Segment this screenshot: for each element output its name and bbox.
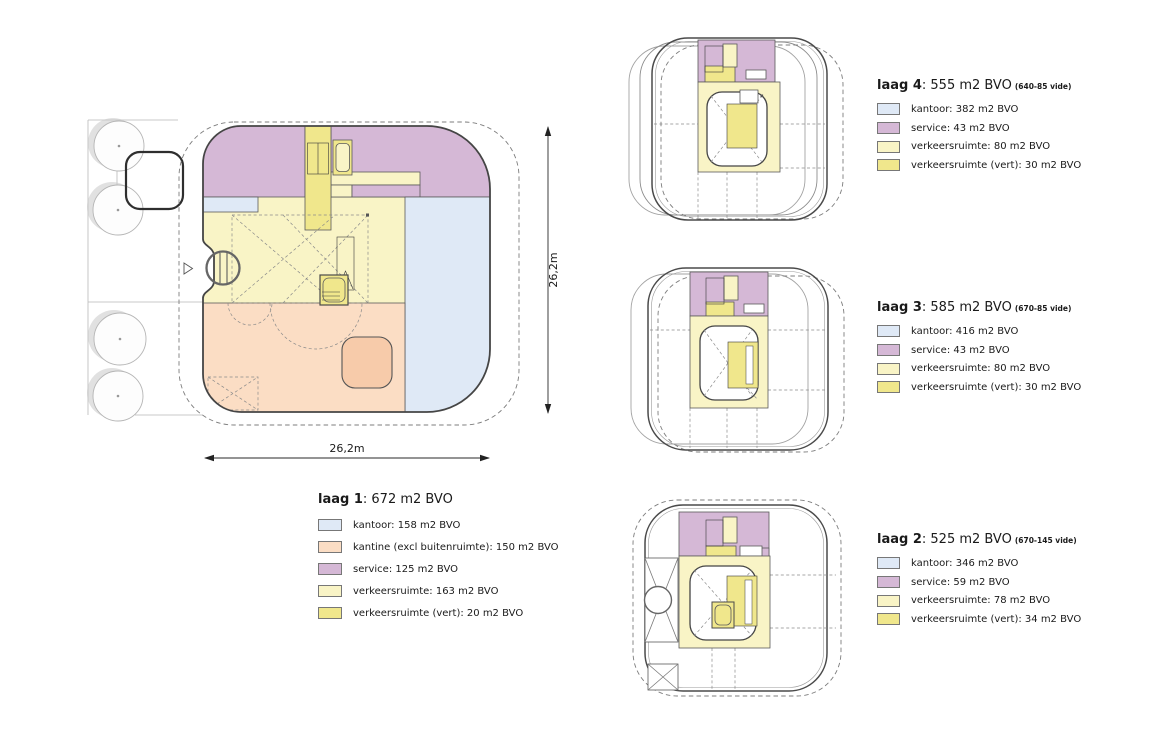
- legend-item-label: service: 43 m2 BVO: [911, 345, 1010, 356]
- swatch-kantoor: [877, 103, 900, 115]
- elevator-car: [336, 144, 350, 172]
- legend-item: verkeersruimte (vert): 34 m2 BVO: [877, 610, 1081, 629]
- legend-item: service: 125 m2 BVO: [318, 558, 559, 580]
- swatch-kantoor: [877, 557, 900, 569]
- swatch-service: [877, 122, 900, 134]
- dimension-width-label: 26,2m: [329, 442, 364, 455]
- legend-laag-1: laag 1: 672 m2 BVO kantoor: 158 m2 BVO k…: [318, 492, 559, 624]
- swatch-kantine: [318, 541, 342, 553]
- corridor: [331, 185, 352, 197]
- north-triangle-marker: [184, 263, 193, 274]
- legend-title: laag 3: 585 m2 BVO(670-85 vide): [877, 300, 1081, 315]
- legend-item: verkeersruimte: 80 m2 BVO: [877, 359, 1081, 378]
- floor-plan-laag-4-drawing: [622, 28, 852, 225]
- tree-icon: [87, 368, 143, 421]
- swatch-verkeersruimte: [877, 595, 900, 607]
- swatch-kantoor: [318, 519, 342, 531]
- legend-item-label: service: 43 m2 BVO: [911, 123, 1010, 134]
- verkeersruimte-area: [705, 66, 735, 82]
- trees: [87, 118, 146, 421]
- verkeersruimte-vert-box: [320, 275, 348, 305]
- legend-item-label: verkeersruimte (vert): 34 m2 BVO: [911, 614, 1081, 625]
- dimension-vertical: 26,2m: [545, 126, 560, 414]
- core: [698, 40, 780, 172]
- legend-laag-4: laag 4: 555 m2 BVO(640-85 vide) kantoor:…: [877, 78, 1081, 175]
- core: [679, 512, 770, 648]
- stairs: [728, 342, 758, 388]
- swatch-verkeersruimte: [877, 141, 900, 153]
- legend-total: : 672 m2 BVO: [363, 492, 453, 507]
- floor-plan-sheet: 26,2m 26,2m: [0, 0, 1170, 731]
- legend-item: verkeersruimte (vert): 20 m2 BVO: [318, 602, 559, 624]
- legend-laag-3: laag 3: 585 m2 BVO(670-85 vide) kantoor:…: [877, 300, 1081, 397]
- legend-item-label: service: 125 m2 BVO: [353, 564, 458, 575]
- kantine-block: [342, 337, 392, 388]
- floor-plan-laag-2-drawing: [622, 498, 857, 704]
- legend-item: kantoor: 158 m2 BVO: [318, 514, 559, 536]
- verkeersruimte-area: [723, 517, 737, 543]
- tree-icon: [88, 310, 146, 365]
- legend-floor-name: laag 3: [877, 300, 922, 315]
- legend-note: (640-85 vide): [1015, 82, 1072, 91]
- verkeersruimte-vert-strip: [305, 124, 331, 230]
- legend-note: (670-85 vide): [1015, 304, 1072, 313]
- legend-item-label: verkeersruimte: 80 m2 BVO: [911, 363, 1050, 374]
- legend-total: : 585 m2 BVO: [922, 300, 1012, 315]
- legend-item-label: kantoor: 382 m2 BVO: [911, 104, 1018, 115]
- legend-item-label: kantoor: 416 m2 BVO: [911, 326, 1018, 337]
- legend-floor-name: laag 2: [877, 532, 922, 547]
- floor-plan-laag-1-drawing: 26,2m 26,2m: [75, 105, 585, 475]
- legend-item: kantoor: 382 m2 BVO: [877, 100, 1081, 119]
- legend-item-label: verkeersruimte (vert): 20 m2 BVO: [353, 608, 523, 619]
- swatch-verkeersruimte-vert: [877, 159, 900, 171]
- verkeersruimte-area: [706, 546, 736, 556]
- legend-item-label: verkeersruimte: 78 m2 BVO: [911, 595, 1050, 606]
- legend-item: verkeersruimte (vert): 30 m2 BVO: [877, 378, 1081, 397]
- legend-item: service: 43 m2 BVO: [877, 341, 1081, 360]
- legend-laag-2: laag 2: 525 m2 BVO(670-145 vide) kantoor…: [877, 532, 1081, 629]
- legend-total: : 555 m2 BVO: [922, 78, 1012, 93]
- dimension-horizontal: 26,2m: [204, 442, 490, 461]
- swatch-service: [877, 576, 900, 588]
- legend-item: kantoor: 416 m2 BVO: [877, 322, 1081, 341]
- verkeersruimte-area: [723, 44, 737, 67]
- swatch-kantoor: [877, 325, 900, 337]
- legend-item-label: service: 59 m2 BVO: [911, 577, 1010, 588]
- legend-note: (670-145 vide): [1015, 536, 1077, 545]
- service-area: [352, 185, 420, 197]
- swatch-verkeersruimte-vert: [877, 613, 900, 625]
- swatch-verkeersruimte: [877, 363, 900, 375]
- legend-item: kantine (excl buitenruimte): 150 m2 BVO: [318, 536, 559, 558]
- legend-item-label: verkeersruimte: 163 m2 BVO: [353, 586, 498, 597]
- legend-item-label: kantine (excl buitenruimte): 150 m2 BVO: [353, 542, 559, 553]
- dimension-height-label: 26,2m: [547, 252, 560, 287]
- verkeersruimte-area: [724, 276, 738, 300]
- legend-item: service: 43 m2 BVO: [877, 119, 1081, 138]
- kantoor-area: [200, 197, 258, 212]
- legend-item-label: verkeersruimte (vert): 30 m2 BVO: [911, 160, 1081, 171]
- legend-total: : 525 m2 BVO: [922, 532, 1012, 547]
- legend-floor-name: laag 1: [318, 492, 363, 507]
- legend-item-label: verkeersruimte: 80 m2 BVO: [911, 141, 1050, 152]
- swatch-verkeersruimte-vert: [877, 381, 900, 393]
- legend-item-label: kantoor: 346 m2 BVO: [911, 558, 1018, 569]
- legend-title: laag 1: 672 m2 BVO: [318, 492, 559, 507]
- legend-item: kantoor: 346 m2 BVO: [877, 554, 1081, 573]
- legend-item: verkeersruimte: 163 m2 BVO: [318, 580, 559, 602]
- swatch-verkeersruimte: [318, 585, 342, 597]
- entrance-void: [645, 558, 679, 690]
- legend-item: verkeersruimte (vert): 30 m2 BVO: [877, 156, 1081, 175]
- legend-floor-name: laag 4: [877, 78, 922, 93]
- service-room: [744, 304, 764, 313]
- legend-title: laag 4: 555 m2 BVO(640-85 vide): [877, 78, 1081, 93]
- legend-item: verkeersruimte: 78 m2 BVO: [877, 591, 1081, 610]
- tree-icon: [88, 118, 144, 171]
- legend-item-label: verkeersruimte (vert): 30 m2 BVO: [911, 382, 1081, 393]
- legend-item-label: kantoor: 158 m2 BVO: [353, 520, 460, 531]
- legend-item: verkeersruimte: 80 m2 BVO: [877, 137, 1081, 156]
- legend-item: service: 59 m2 BVO: [877, 573, 1081, 592]
- service-room: [746, 70, 766, 79]
- legend-title: laag 2: 525 m2 BVO(670-145 vide): [877, 532, 1081, 547]
- core: [690, 272, 768, 408]
- floor-plan-laag-3-drawing: [622, 258, 852, 458]
- stairs: [727, 104, 757, 148]
- swatch-service: [877, 344, 900, 356]
- kantoor-area: [405, 197, 492, 413]
- swatch-service: [318, 563, 342, 575]
- service-room: [740, 546, 762, 556]
- swatch-verkeersruimte-vert: [318, 607, 342, 619]
